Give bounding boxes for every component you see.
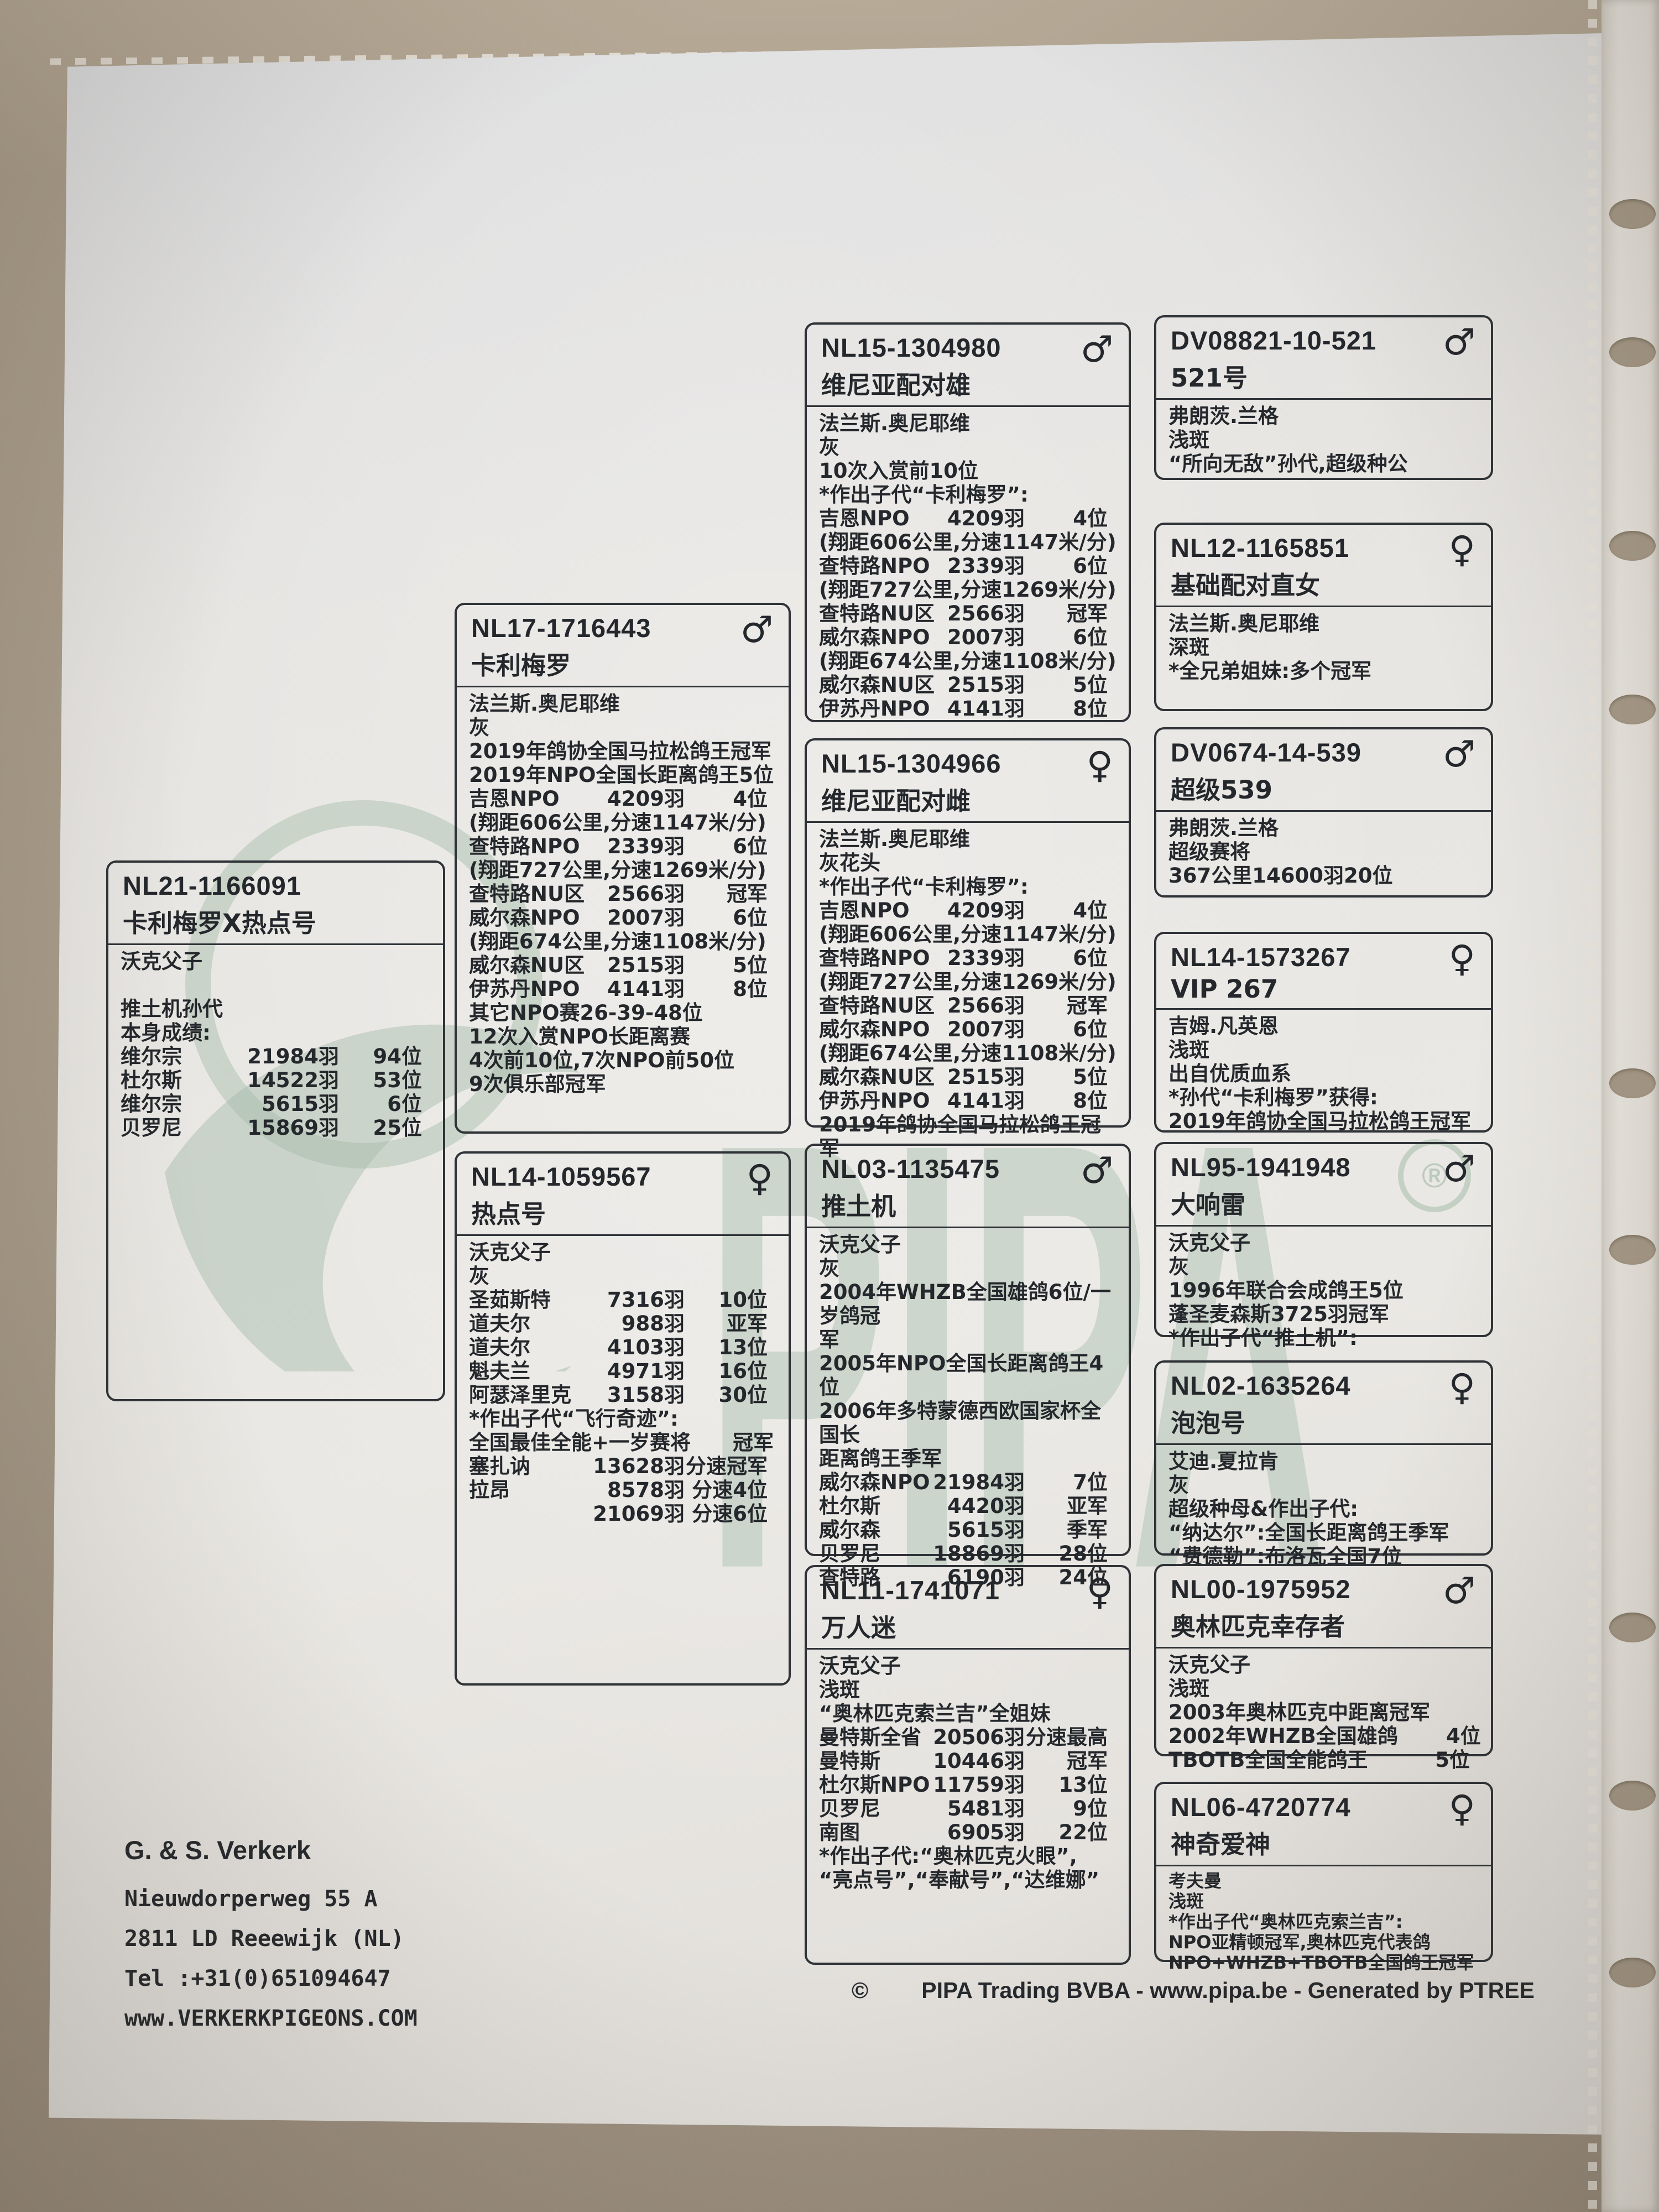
ring-number: NL95-1941948 [1171,1152,1425,1182]
pedigree-line: *作出子代“卡利梅罗”: [819,483,1118,507]
pedigree-line: 军 [819,1328,1118,1352]
breeder-block: G. & S. Verkerk Nieuwdorperweg 55 A 2811… [124,1835,418,2031]
race-rank: 8位 [685,977,768,1001]
pedigree-box-NL12-1165851: NL12-1165851基础配对直女♀法兰斯.奥尼耶维深斑*全兄弟姐妹:多个冠军 [1154,523,1493,711]
pigeon-name: 维尼亚配对雄 [821,365,1062,401]
pedigree-box-NL14-1059567: NL14-1059567热点号♀沃克父子灰圣茹斯特7316羽10位道夫尔988羽… [455,1151,791,1686]
pedigree-line: 超级种母&作出子代: [1168,1497,1480,1521]
race-rank: 30位 [685,1383,768,1407]
pedigree-line: 法兰斯.奥尼耶维 [1168,612,1480,635]
race-rank: 4位 [685,787,768,811]
pedigree-line: “亮点号”,“奉献号”,“达维娜” [819,1868,1118,1892]
pedigree-box-body: 沃克父子浅斑2003年奥林匹克中距离冠军2002年WHZB全国雄鸽4位TBOTB… [1156,1648,1491,1774]
race-birds: 18869羽 [880,1542,1025,1566]
pedigree-line: 出自优质血系 [1168,1062,1480,1086]
race-name: 威尔森NU区 [819,1065,935,1089]
race-name: 查特路NPO [819,946,930,970]
race-birds: 4420羽 [880,1494,1025,1518]
pedigree-result-row: 威尔森NU区2515羽5位 [469,953,778,977]
pedigree-box-DV08821-10-521: DV08821-10-521521号♂弗朗茨.兰格浅斑“所向无敌”孙代,超级种公 [1154,315,1493,480]
pedigree-line: 沃克父子 [121,950,432,973]
pedigree-box-body: 沃克父子灰圣茹斯特7316羽10位道夫尔988羽亚军道夫尔4103羽13位魁夫兰… [457,1236,789,1528]
race-birds: 21984羽 [182,1045,339,1068]
pedigree-line: 灰 [819,1256,1118,1280]
pedigree-box-DV0674-14-539: DV0674-14-539超级539♂弗朗茨.兰格超级赛将367公里14600羽… [1154,727,1493,898]
pedigree-line: 考夫曼 [1168,1871,1480,1891]
breeder-address-line: Nieuwdorperweg 55 A [124,1886,418,1912]
pedigree-result-row: 贝罗尼18869羽28位 [819,1542,1118,1566]
pedigree-box-NL15-1304980: NL15-1304980维尼亚配对雄♂法兰斯.奥尼耶维灰10次入赏前10位*作出… [805,322,1131,722]
race-birds: 4209羽 [560,787,685,811]
race-name: 曼特斯全省 [819,1725,921,1749]
race-birds: 4141羽 [930,697,1025,721]
pedigree-line: 弗朗茨.兰格 [1168,404,1480,428]
race-name: 阿瑟泽里克 [469,1383,571,1407]
male-icon: ♂ [740,612,773,648]
race-birds: 2566羽 [935,602,1025,625]
pedigree-result-row: 阿瑟泽里克3158羽30位 [469,1383,778,1407]
pedigree-box-header: NL21-1166091卡利梅罗X热点号 [108,863,443,945]
pedigree-box-body: 艾迪.夏拉肯灰超级种母&作出子代:“纳达尔”:全国长距离鸽王季军“费德勒”:布洛… [1156,1445,1491,1571]
breeder-website: www.VERKERKPIGEONS.COM [124,2006,418,2031]
pedigree-line: 弗朗茨.兰格 [1168,816,1480,840]
pedigree-line: *孙代“卡利梅罗”获得: [1168,1086,1480,1109]
pedigree-line: 灰 [469,1264,778,1288]
ring-number: NL14-1573267 [1171,942,1425,972]
pedigree-line: 沃克父子 [819,1654,1118,1678]
pedigree-box-NL03-1135475: NL03-1135475推土机♂沃克父子灰2004年WHZB全国雄鸽6位/一岁鸽… [805,1144,1131,1556]
pedigree-line: 法兰斯.奥尼耶维 [819,827,1118,851]
pedigree-box-body: 考夫曼浅斑*作出子代“奥林匹克索兰吉”:NPO亚精顿冠军,奥林匹克代表鸽NPO+… [1156,1866,1491,1975]
binder-hole [1609,1068,1656,1098]
pedigree-result-row: 南图6905羽22位 [819,1820,1118,1844]
pedigree-sheet: PIPA ® NL21-1166091卡利梅罗X热点号沃克父子 推土机孙代本身成… [49,33,1604,2135]
breeder-address-line: 2811 LD Reeewijk (NL) [124,1926,418,1952]
pedigree-result-row: 杜尔斯4420羽亚军 [819,1494,1118,1518]
pedigree-line: 灰花头 [819,851,1118,875]
pedigree-result-row: 曼特斯10446羽冠军 [819,1749,1118,1773]
pedigree-result-row: 威尔森NPO2007羽6位 [819,1018,1118,1041]
pedigree-result-row: 维尔宗21984羽94位 [121,1045,432,1068]
binder-hole [1609,1613,1656,1642]
race-name: 威尔森NPO [469,906,580,930]
perforation-line [1588,0,1597,2212]
pedigree-line: 灰 [1168,1473,1480,1497]
race-rank: 13位 [1025,1773,1108,1797]
male-icon: ♂ [1443,1573,1475,1609]
pedigree-box-NL02-1635264: NL02-1635264泡泡号♀艾迪.夏拉肯灰超级种母&作出子代:“纳达尔”:全… [1154,1360,1493,1556]
race-name: 拉昂 [469,1478,510,1502]
ring-number: NL17-1716443 [471,613,722,643]
race-rank: 16位 [685,1359,768,1383]
pedigree-box-NL95-1941948: NL95-1941948大响雷♂沃克父子灰1996年联合会成鸽王5位蓬圣麦森斯3… [1154,1142,1493,1337]
race-birds: 2007羽 [930,1018,1025,1041]
race-name: 查特路NPO [819,554,930,578]
race-name: 贝罗尼 [121,1116,182,1140]
pedigree-box-NL21-1166091: NL21-1166091卡利梅罗X热点号沃克父子 推土机孙代本身成绩:维尔宗21… [106,860,445,1401]
pedigree-line: (翔距727公里,分速1269米/分) [469,858,778,882]
pedigree-box-header: NL15-1304980维尼亚配对雄♂ [807,325,1129,407]
pedigree-line: 灰 [819,435,1118,459]
race-rank: 28位 [1025,1542,1108,1566]
pedigree-line: 超级赛将 [1168,840,1480,864]
race-name: 魁夫兰 [469,1359,530,1383]
race-rank: 分速最高 [1025,1725,1108,1749]
pedigree-result-row: 查特路NU区2566羽冠军 [819,994,1118,1018]
pedigree-box-header: NL03-1135475推土机♂ [807,1146,1129,1228]
pedigree-result-row: 道夫尔988羽亚军 [469,1312,778,1335]
pedigree-line: 法兰斯.奥尼耶维 [819,411,1118,435]
race-rank: 4位 [1025,507,1108,530]
race-name: 威尔森NPO [819,625,930,649]
binder-hole [1609,1958,1656,1987]
race-name: 贝罗尼 [819,1797,880,1820]
pedigree-line: *作出子代:“奥林匹克火眼”, [819,1844,1118,1868]
race-rank: 冠军 [685,882,768,906]
ring-number: NL14-1059567 [471,1161,722,1192]
pedigree-line: 距离鸽王季军 [819,1447,1118,1470]
race-birds: 2566羽 [935,994,1025,1018]
race-rank: 10位 [685,1288,768,1312]
pedigree-result-row: 贝罗尼5481羽9位 [819,1797,1118,1820]
ring-number: NL02-1635264 [1171,1370,1425,1401]
binder-hole [1609,337,1656,367]
race-name: 杜尔斯 [819,1494,880,1518]
male-icon: ♂ [1443,736,1475,773]
pigeon-name: 泡泡号 [1171,1403,1425,1439]
pedigree-result-row: TBOTB全国全能鸽王5位 [1168,1748,1480,1772]
pedigree-box-NL00-1975952: NL00-1975952奥林匹克幸存者♂沃克父子浅斑2003年奥林匹克中距离冠军… [1154,1564,1493,1756]
race-rank: 分速冠军 [685,1454,768,1478]
female-icon: ♀ [747,1160,773,1197]
race-rank: 5位 [1387,1748,1470,1772]
pedigree-result-row: 伊苏丹NPO4141羽8位 [819,697,1118,721]
pedigree-line: *作出子代“飞行奇迹”: [469,1407,778,1431]
pedigree-line: 沃克父子 [819,1233,1118,1256]
pigeon-name: 推土机 [821,1186,1062,1222]
race-rank: 冠军 [1025,1749,1108,1773]
pedigree-box-body: 沃克父子灰1996年联合会成鸽王5位蓬圣麦森斯3725羽冠军*作出子代“推土机”… [1156,1227,1491,1352]
pigeon-name: 大响雷 [1171,1185,1425,1220]
pedigree-line: 吉姆.凡英恩 [1168,1014,1480,1038]
pigeon-name: VIP 267 [1171,974,1425,1004]
pedigree-line: 深斑 [1168,635,1480,659]
pigeon-name: 521号 [1171,358,1425,394]
race-name: 伊苏丹NPO [469,977,580,1001]
race-rank: 9位 [1025,1797,1108,1820]
pedigree-line: *作出子代“奥林匹克索兰吉”: [1168,1912,1480,1932]
race-rank: 冠军 [691,1431,774,1454]
race-birds: 3158羽 [571,1383,685,1407]
ring-number: NL15-1304980 [821,332,1062,363]
race-birds: 4971羽 [530,1359,685,1383]
pedigree-box-body: 弗朗茨.兰格超级赛将367公里14600羽20位 [1156,812,1491,890]
race-birds: 10446羽 [880,1749,1025,1773]
race-name: 维尔宗 [121,1045,182,1068]
pedigree-line: NPO亚精顿冠军,奥林匹克代表鸽 [1168,1932,1480,1953]
pedigree-line: 浅斑 [1168,1891,1480,1912]
race-rank: 5位 [685,953,768,977]
binder-hole [1609,1781,1656,1811]
race-birds: 7316羽 [551,1288,685,1312]
pedigree-box-NL11-1741071: NL11-1741071万人迷♀沃克父子浅斑“奥林匹克索兰吉”全姐妹曼特斯全省2… [805,1565,1131,1965]
race-birds [1368,1748,1387,1772]
pedigree-box-header: NL00-1975952奥林匹克幸存者♂ [1156,1566,1491,1648]
race-name: 威尔森NPO [819,1018,930,1041]
race-name: 曼特斯 [819,1749,880,1773]
ring-number: NL12-1165851 [1171,533,1425,563]
pedigree-box-header: NL14-1059567热点号♀ [457,1154,789,1236]
pedigree-result-row: 威尔森NPO2007羽6位 [469,906,778,930]
race-birds: 21984羽 [930,1470,1025,1494]
pedigree-box-header: NL11-1741071万人迷♀ [807,1567,1129,1650]
race-birds: 4103羽 [530,1335,685,1359]
race-birds: 6905羽 [860,1820,1025,1844]
pedigree-line: *全兄弟姐妹:多个冠军 [1168,659,1480,683]
female-icon: ♀ [1087,1574,1113,1610]
race-birds: 5615羽 [182,1092,339,1116]
race-birds: 2339羽 [930,554,1025,578]
race-rank: 5位 [1025,673,1108,697]
pedigree-box-header: NL14-1573267VIP 267♀ [1156,934,1491,1010]
race-birds: 2339羽 [580,834,685,858]
female-icon: ♀ [1449,1791,1475,1827]
pedigree-result-row: 吉恩NPO4209羽4位 [819,507,1118,530]
pigeon-name: 基础配对直女 [1171,565,1425,601]
pedigree-line: (翔距674公里,分速1108米/分) [819,649,1118,673]
race-rank: 分速4位 [685,1478,768,1502]
pedigree-box-NL14-1573267: NL14-1573267VIP 267♀吉姆.凡英恩浅斑出自优质血系*孙代“卡利… [1154,932,1493,1133]
pedigree-line: (翔距674公里,分速1108米/分) [819,1041,1118,1065]
pedigree-result-row: 威尔森5615羽季军 [819,1518,1118,1542]
pigeon-name: 卡利梅罗X热点号 [123,903,377,939]
race-rank: 6位 [339,1092,422,1116]
race-rank: 22位 [1025,1820,1108,1844]
pedigree-result-row: 拉昂8578羽分速4位 [469,1478,778,1502]
pedigree-box-body: 吉姆.凡英恩浅斑出自优质血系*孙代“卡利梅罗”获得:2019年鸽协全国马拉松鸽王… [1156,1010,1491,1135]
pigeon-name: 热点号 [471,1194,722,1230]
pedigree-box-header: NL06-4720774神奇爱神♀ [1156,1784,1491,1866]
pedigree-line: 本身成绩: [121,1021,432,1045]
race-name: 塞扎讷 [469,1454,530,1478]
female-icon: ♀ [1449,531,1475,568]
ring-number: NL15-1304966 [821,748,1062,779]
pedigree-line: 蓬圣麦森斯3725羽冠军 [1168,1302,1480,1326]
pedigree-line: 9次俱乐部冠军 [469,1072,778,1096]
pedigree-box-body: 沃克父子浅斑“奥林匹克索兰吉”全姐妹曼特斯全省20506羽分速最高曼特斯1044… [807,1650,1129,1894]
race-name: 威尔森NU区 [469,953,585,977]
race-name: 吉恩NPO [819,899,910,922]
pedigree-result-row: 吉恩NPO4209羽4位 [819,899,1118,922]
pedigree-result-row: 道夫尔4103羽13位 [469,1335,778,1359]
male-icon: ♂ [1443,1151,1475,1187]
race-birds: 2515羽 [935,673,1025,697]
pedigree-line: 推土机孙代 [121,997,432,1021]
pedigree-result-row: 杜尔斯14522羽53位 [121,1068,432,1092]
pedigree-result-row: 魁夫兰4971羽16位 [469,1359,778,1383]
race-name: 南图 [819,1820,860,1844]
pedigree-line: 2003年奥林匹克中距离冠军 [1168,1700,1480,1724]
pedigree-result-row: 全国最佳全能+一岁赛将冠军 [469,1431,778,1454]
breeder-phone: Tel :+31(0)651094647 [124,1966,418,1991]
race-name: 威尔森 [819,1518,880,1542]
pedigree-line [121,973,432,997]
binder-hole [1609,1235,1656,1265]
race-name: 杜尔斯NPO [819,1773,930,1797]
pedigree-result-row: 圣茹斯特7316羽10位 [469,1288,778,1312]
race-birds: 4209羽 [910,507,1025,530]
pedigree-result-row: 2002年WHZB全国雄鸽4位 [1168,1724,1480,1748]
pedigree-line: 浅斑 [819,1678,1118,1702]
pedigree-line: 2006年多特蒙德西欧国家杯全国长 [819,1399,1118,1447]
race-rank: 53位 [339,1068,422,1092]
pedigree-box-header: NL02-1635264泡泡号♀ [1156,1363,1491,1445]
pedigree-box-body: 法兰斯.奥尼耶维灰2019年鸽协全国马拉松鸽王冠军2019年NPO全国长距离鸽王… [457,687,789,1098]
pedigree-result-row: 伊苏丹NPO4141羽8位 [469,977,778,1001]
ring-number: DV08821-10-521 [1171,325,1425,356]
pedigree-line: 沃克父子 [469,1240,778,1264]
race-birds: 5481羽 [880,1797,1025,1820]
pedigree-line: 2004年WHZB全国雄鸽6位/一岁鸽冠 [819,1280,1118,1328]
race-birds: 4141羽 [930,1089,1025,1113]
race-name: 查特路NU区 [469,882,585,906]
race-name: 伊苏丹NPO [819,697,930,721]
pedigree-line: *作出子代“卡利梅罗”: [819,875,1118,899]
race-birds: 8578羽 [510,1478,685,1502]
pedigree-box-body: 法兰斯.奥尼耶维深斑*全兄弟姐妹:多个冠军 [1156,607,1491,685]
race-name: 贝罗尼 [819,1542,880,1566]
pedigree-box-NL15-1304966: NL15-1304966维尼亚配对雌♀法兰斯.奥尼耶维灰花头*作出子代“卡利梅罗… [805,738,1131,1128]
race-name: TBOTB全国全能鸽王 [1168,1748,1368,1772]
pedigree-result-row: 维尔宗5615羽6位 [121,1092,432,1116]
race-birds: 21069羽 [469,1502,685,1526]
pedigree-result-row: 威尔森NU区2515羽5位 [819,1065,1118,1089]
pedigree-line: 其它NPO赛26-39-48位 [469,1001,778,1025]
ring-number: NL11-1741071 [821,1575,1062,1605]
photo-backdrop: PIPA ® NL21-1166091卡利梅罗X热点号沃克父子 推土机孙代本身成… [0,0,1659,2212]
race-birds: 13628羽 [530,1454,685,1478]
ring-number: NL03-1135475 [821,1154,1062,1184]
race-rank: 4位 [1025,899,1108,922]
pedigree-result-row: 伊苏丹NPO4141羽8位 [819,1089,1118,1113]
race-name: 吉恩NPO [469,787,560,811]
ring-number: DV0674-14-539 [1171,737,1425,768]
pedigree-box-header: DV08821-10-521521号♂ [1156,317,1491,400]
binder-strip [1601,0,1659,2212]
pedigree-line: 2019年鸽协全国马拉松鸽王冠军 [1168,1109,1480,1133]
race-rank: 亚军 [685,1312,768,1335]
race-birds: 2566羽 [585,882,685,906]
female-icon: ♀ [1449,1369,1475,1406]
ring-number: NL21-1166091 [123,870,377,901]
race-rank: 25位 [339,1116,422,1140]
pedigree-result-row: 查特路NPO2339羽6位 [819,554,1118,578]
race-rank: 13位 [685,1335,768,1359]
pedigree-result-row: 威尔森NPO21984羽7位 [819,1470,1118,1494]
pedigree-line: 灰 [469,716,778,739]
breeder-name: G. & S. Verkerk [124,1835,418,1865]
pedigree-line: 法兰斯.奥尼耶维 [469,692,778,716]
pedigree-line: “纳达尔”:全国长距离鸽王季军 [1168,1521,1480,1545]
pedigree-line: “奥林匹克索兰吉”全姐妹 [819,1702,1118,1725]
pigeon-name: 万人迷 [821,1608,1062,1644]
pedigree-box-header: DV0674-14-539超级539♂ [1156,729,1491,812]
male-icon: ♂ [1443,324,1475,361]
pedigree-line: 灰 [1168,1255,1480,1279]
pedigree-box-NL17-1716443: NL17-1716443卡利梅罗♂法兰斯.奥尼耶维灰2019年鸽协全国马拉松鸽王… [455,603,791,1134]
race-name: 圣茹斯特 [469,1288,551,1312]
pedigree-line: 沃克父子 [1168,1653,1480,1677]
pedigree-box-header: NL12-1165851基础配对直女♀ [1156,525,1491,607]
binder-hole [1609,199,1656,229]
pigeon-name: 神奇爱神 [1171,1824,1425,1860]
male-icon: ♂ [1081,331,1113,368]
race-name: 道夫尔 [469,1312,530,1335]
race-birds: 988羽 [530,1312,685,1335]
pedigree-box-body: 法兰斯.奥尼耶维灰花头*作出子代“卡利梅罗”:吉恩NPO4209羽4位(翔距60… [807,823,1129,1162]
pedigree-box-body: 沃克父子 推土机孙代本身成绩:维尔宗21984羽94位杜尔斯14522羽53位维… [108,945,443,1142]
race-birds: 4209羽 [910,899,1025,922]
race-rank: 7位 [1025,1470,1108,1494]
race-name: 全国最佳全能+一岁赛将 [469,1431,691,1454]
footer: © PIPA Trading BVBA - www.pipa.be - Gene… [852,1978,1535,2004]
pedigree-result-row: 威尔森NPO2007羽6位 [819,625,1118,649]
pedigree-line: 4次前10位,7次NPO前50位 [469,1048,778,1072]
pedigree-line: *作出子代“推土机”: [1168,1326,1480,1350]
race-rank: 6位 [1025,946,1108,970]
pedigree-result-row: 21069羽分速6位 [469,1502,778,1526]
race-name: 2002年WHZB全国雄鸽 [1168,1724,1398,1748]
pedigree-line: 2005年NPO全国长距离鸽王4位 [819,1352,1118,1399]
pedigree-line: 沃克父子 [1168,1231,1480,1255]
footer-copyright-icon: © [852,1978,868,2004]
race-rank: 8位 [1025,1089,1108,1113]
binder-hole [1609,695,1656,724]
race-rank: 冠军 [1025,602,1108,625]
footer-text: PIPA Trading BVBA - www.pipa.be - Genera… [921,1978,1535,2004]
race-rank: 亚军 [1025,1494,1108,1518]
pedigree-line: 10次入赏前10位 [819,459,1118,483]
race-rank: 5位 [1025,1065,1108,1089]
pedigree-line: 12次入赏NPO长距离赛 [469,1025,778,1048]
race-birds: 5615羽 [880,1518,1025,1542]
pedigree-line: (翔距674公里,分速1108米/分) [469,930,778,953]
pedigree-line: 艾迪.夏拉肯 [1168,1449,1480,1473]
race-name: 吉恩NPO [819,507,910,530]
binder-hole [1609,531,1656,561]
race-birds: 15869羽 [182,1116,339,1140]
pedigree-line: NPO+WHZB+TBOTB全国鸽王冠军 [1168,1953,1480,1973]
pedigree-line: (翔距606公里,分速1147米/分) [819,530,1118,554]
pigeon-name: 卡利梅罗 [471,645,722,681]
pedigree-line: 2019年鸽协全国马拉松鸽王冠军 [469,739,778,763]
pedigree-box-body: 沃克父子灰2004年WHZB全国雄鸽6位/一岁鸽冠军2005年NPO全国长距离鸽… [807,1228,1129,1592]
race-name: 查特路NU区 [819,602,935,625]
pedigree-result-row: 查特路NPO2339羽6位 [819,946,1118,970]
race-name: 伊苏丹NPO [819,1089,930,1113]
pedigree-result-row: 吉恩NPO4209羽4位 [469,787,778,811]
race-rank: 6位 [1025,625,1108,649]
pedigree-result-row: 查特路NU区2566羽冠军 [469,882,778,906]
pedigree-result-row: 塞扎讷13628羽分速冠军 [469,1454,778,1478]
race-name: 道夫尔 [469,1335,530,1359]
pedigree-result-row: 杜尔斯NPO11759羽13位 [819,1773,1118,1797]
race-rank: 4位 [1398,1724,1481,1748]
pedigree-line: (翔距606公里,分速1147米/分) [469,811,778,834]
pedigree-line: 367公里14600羽20位 [1168,864,1480,888]
pigeon-name: 超级539 [1171,770,1425,806]
pedigree-box-body: 法兰斯.奥尼耶维灰10次入赏前10位*作出子代“卡利梅罗”:吉恩NPO4209羽… [807,407,1129,723]
